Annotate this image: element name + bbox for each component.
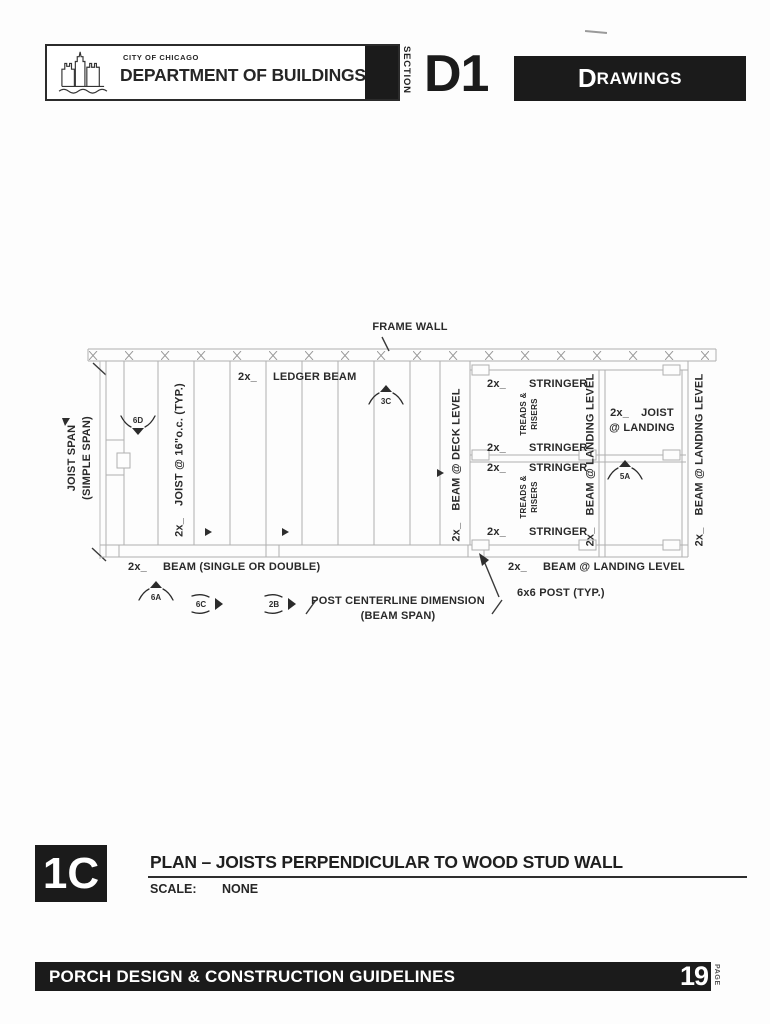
joist-at-landing-label: 2x_JOIST @ LANDING: [609, 406, 675, 436]
detail-code-box: 1C: [35, 845, 107, 902]
city-of-chicago-logo-icon: [53, 50, 113, 96]
joist-span-label: JOIST SPAN (SIMPLE SPAN): [65, 416, 95, 500]
joist-linework: [106, 361, 470, 557]
detail-marker-6a-label: 6A: [151, 593, 161, 602]
stringer-label: 2x_STRINGER: [487, 461, 587, 476]
plan-drawing: FRAME WALL 2x_LEDGER BEAM JOIST SPAN (SI…: [0, 318, 770, 652]
city-of-chicago-label: CITY OF CHICAGO: [123, 53, 199, 62]
scan-artifact: [585, 30, 607, 34]
frame-wall-label: FRAME WALL: [372, 320, 447, 335]
detail-marker-6d-label: 6D: [133, 416, 143, 425]
detail-marker-2b: 2B: [262, 593, 298, 615]
page-number: 19: [680, 961, 708, 992]
scale-value: NONE: [222, 882, 258, 896]
frame-wall-linework: [88, 337, 716, 361]
department-title: DEPARTMENT OF BUILDINGS: [120, 65, 366, 86]
detail-marker-5a: 5A: [606, 458, 644, 484]
header-black-block: [365, 46, 398, 99]
department-header-box: CITY OF CHICAGO DEPARTMENT OF BUILDINGS: [45, 44, 400, 101]
section-code: D1: [424, 44, 488, 104]
scale-label: SCALE:: [150, 882, 197, 896]
drawings-banner-rest: RAWINGS: [597, 69, 682, 89]
page-label: PAGE: [713, 964, 720, 986]
detail-marker-6a: 6A: [137, 579, 175, 605]
beam-landing-level-mid-label: 2x_BEAM @ LANDING LEVEL: [584, 374, 599, 547]
detail-marker-6c-label: 6C: [196, 600, 206, 609]
detail-marker-3c: 3C: [367, 383, 405, 409]
footer-banner: PORCH DESIGN & CONSTRUCTION GUIDELINES 1…: [35, 962, 711, 991]
ledger-beam-label: 2x_LEDGER BEAM: [238, 370, 356, 385]
drawings-banner: DRAWINGS: [514, 56, 746, 101]
joist-typ-label: 2x_JOIST @ 16"o.c. (TYP.): [173, 383, 188, 537]
post-typ-label: 6x6 POST (TYP.): [517, 586, 605, 601]
drawing-title: PLAN – JOISTS PERPENDICULAR TO WOOD STUD…: [150, 852, 623, 873]
detail-marker-6c: 6C: [189, 593, 225, 615]
beam-landing-level-bottom-label: 2x_BEAM @ LANDING LEVEL: [508, 560, 685, 575]
section-label: SECTION: [401, 46, 412, 104]
beam-single-double-label: 2x_BEAM (SINGLE OR DOUBLE): [128, 560, 320, 575]
beam-deck-level-label: 2x_BEAM @ DECK LEVEL: [450, 388, 465, 541]
title-underline: [148, 876, 747, 878]
detail-marker-3c-label: 3C: [381, 397, 391, 406]
footer-title: PORCH DESIGN & CONSTRUCTION GUIDELINES: [49, 967, 680, 987]
treads-risers-label: TREADS & RISERS: [518, 392, 540, 435]
drawings-banner-initial: D: [578, 63, 597, 94]
stringer-label: 2x_STRINGER: [487, 441, 587, 456]
detail-marker-5a-label: 5A: [620, 472, 630, 481]
document-page: CITY OF CHICAGO DEPARTMENT OF BUILDINGS …: [0, 0, 770, 1024]
beam-landing-level-right-label: 2x_BEAM @ LANDING LEVEL: [693, 374, 708, 547]
post-centerline-dimension-label: POST CENTERLINE DIMENSION (BEAM SPAN): [311, 594, 485, 624]
detail-marker-2b-label: 2B: [269, 600, 279, 609]
stringer-label: 2x_STRINGER: [487, 377, 587, 392]
ledger-beam-size: 2x_: [238, 370, 257, 385]
stringer-label: 2x_STRINGER: [487, 525, 587, 540]
beam-linework: [100, 545, 688, 557]
detail-marker-6d: 6D: [119, 411, 157, 437]
treads-risers-label: TREADS & RISERS: [518, 475, 540, 518]
